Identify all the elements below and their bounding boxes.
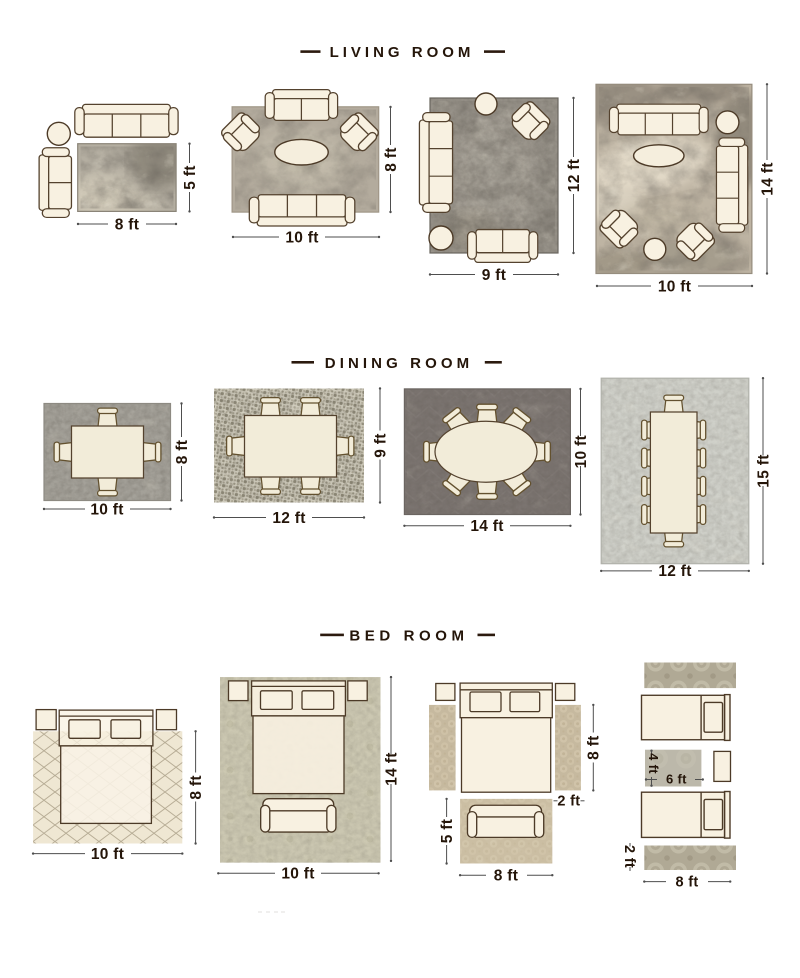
svg-text:DINING ROOM: DINING ROOM (325, 355, 473, 372)
svg-text:8 ft: 8 ft (174, 440, 191, 464)
svg-text:8 ft: 8 ft (115, 216, 139, 233)
svg-text:12 ft: 12 ft (658, 563, 691, 580)
svg-text:8 ft: 8 ft (188, 775, 205, 799)
svg-text:10 ft: 10 ft (658, 278, 691, 295)
svg-text:8 ft: 8 ft (586, 735, 603, 759)
svg-text:2 ft: 2 ft (557, 794, 580, 810)
svg-text:10 ft: 10 ft (90, 501, 123, 518)
svg-text:10 ft: 10 ft (91, 846, 124, 863)
svg-text:5 ft: 5 ft (439, 819, 456, 843)
svg-text:10 ft: 10 ft (281, 866, 314, 883)
svg-text:12 ft: 12 ft (566, 159, 583, 192)
svg-text:14 ft: 14 ft (470, 518, 503, 535)
svg-text:8 ft: 8 ft (494, 868, 518, 885)
svg-text:8 ft: 8 ft (383, 147, 400, 171)
svg-text:9 ft: 9 ft (372, 433, 389, 457)
svg-text:LIVING ROOM: LIVING ROOM (330, 44, 475, 61)
svg-text:14 ft: 14 ft (383, 752, 400, 785)
svg-text:15 ft: 15 ft (755, 454, 772, 487)
svg-text:9 ft: 9 ft (482, 267, 506, 284)
svg-text:12 ft: 12 ft (272, 510, 305, 527)
svg-text:8 ft: 8 ft (676, 874, 699, 890)
svg-text:BED ROOM: BED ROOM (349, 628, 468, 645)
svg-text:4 ft: 4 ft (646, 753, 661, 774)
svg-text:10 ft: 10 ft (285, 229, 318, 246)
svg-text:10 ft: 10 ft (573, 435, 590, 468)
svg-text:6 ft: 6 ft (666, 771, 687, 786)
svg-text:2 ft: 2 ft (621, 845, 637, 868)
svg-text:14 ft: 14 ft (759, 162, 776, 195)
svg-text:5 ft: 5 ft (182, 165, 199, 189)
